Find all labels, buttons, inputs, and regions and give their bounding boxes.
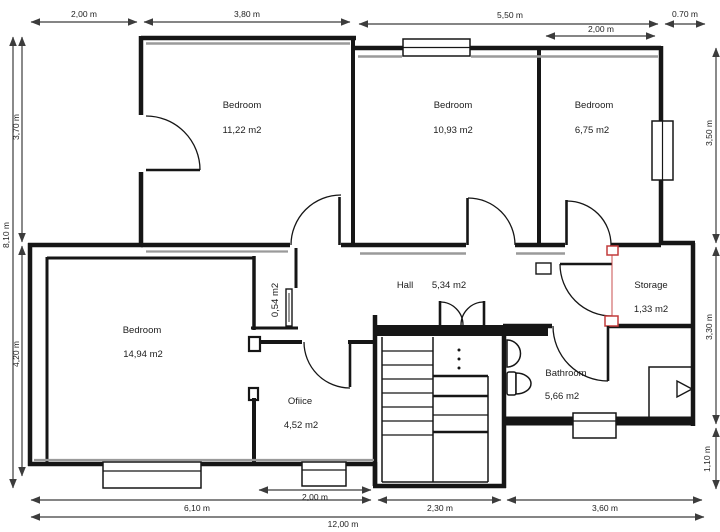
shower-door-triangle-icon xyxy=(677,381,692,397)
room-name-hall: Hall xyxy=(397,280,413,291)
toilet-tank-icon xyxy=(507,372,516,395)
stair-direction-dots xyxy=(458,349,461,370)
dim-label: 4,20 m xyxy=(11,341,21,367)
room-name-bathroom: Bathroom xyxy=(545,368,586,379)
door-arc xyxy=(461,302,484,325)
room-area-office: 4,52 m2 xyxy=(284,420,318,431)
entry-wall xyxy=(377,325,548,336)
door-arc xyxy=(146,116,200,170)
door-hinge-marker-red xyxy=(607,246,618,255)
dim-label: 3,30 m xyxy=(704,314,714,340)
dim-label: 2,00 m xyxy=(588,24,614,34)
dim-label: 1,10 m xyxy=(702,446,712,472)
window xyxy=(103,462,201,488)
room-name-storage: Storage xyxy=(634,280,667,291)
sink-icon xyxy=(507,340,521,367)
floor-plan-svg: 2,00 m 3,80 m 5,50 m 0.70 m 2,00 m 3,70 … xyxy=(0,0,720,532)
dim-label: 5,50 m xyxy=(497,10,523,20)
dim-label: 6,10 m xyxy=(184,503,210,513)
door-arc xyxy=(468,198,515,245)
room-name-bedroom-top-left: Bedroom xyxy=(223,100,262,111)
door-arc xyxy=(291,195,341,245)
dim-label: 3,70 m xyxy=(11,114,21,140)
bathroom-fixtures xyxy=(507,340,693,419)
stair-treads-right xyxy=(433,376,488,432)
room-name-bedroom-top-right: Bedroom xyxy=(575,100,614,111)
room-area-bedroom-left: 14,94 m2 xyxy=(123,349,163,360)
dim-label: 3,80 m xyxy=(234,9,260,19)
door-arc xyxy=(440,302,463,325)
door-arc xyxy=(304,342,350,388)
room-name-bedroom-left: Bedroom xyxy=(123,325,162,336)
door-hinge-marker-red xyxy=(605,316,618,326)
dim-label: 2,00 m xyxy=(71,9,97,19)
door-arc xyxy=(560,264,612,316)
room-name-bedroom-top-mid: Bedroom xyxy=(434,100,473,111)
room-area-hall: 5,34 m2 xyxy=(432,280,466,291)
dim-label: 3,60 m xyxy=(592,503,618,513)
stair-treads-left xyxy=(382,351,433,435)
column-box xyxy=(536,263,551,274)
staircase xyxy=(382,337,488,482)
room-name-office: Ofiice xyxy=(288,396,312,407)
dimension-lines xyxy=(13,22,716,517)
window xyxy=(302,462,346,486)
dim-label: 12,00 m xyxy=(328,519,359,529)
dim-label: 2,00 m xyxy=(302,492,328,502)
room-area-closet: 0,54 m2 xyxy=(270,283,281,317)
window xyxy=(573,413,616,438)
wall-post xyxy=(249,337,260,351)
room-area-bathroom: 5,66 m2 xyxy=(545,391,579,402)
room-labels: Bedroom 11,22 m2 Bedroom 10,93 m2 Bedroo… xyxy=(123,100,668,431)
toilet-bowl-icon xyxy=(516,373,531,394)
floor-plan-canvas: 2,00 m 3,80 m 5,50 m 0.70 m 2,00 m 3,70 … xyxy=(0,0,720,532)
room-area-bedroom-top-mid: 10,93 m2 xyxy=(433,125,473,136)
shower-enclosure xyxy=(649,367,693,419)
dim-label: 2,30 m xyxy=(427,503,453,513)
dimension-labels: 2,00 m 3,80 m 5,50 m 0.70 m 2,00 m 3,70 … xyxy=(1,9,714,529)
dim-label: 8,10 m xyxy=(1,222,11,248)
dim-label: 0.70 m xyxy=(672,9,698,19)
door-arc xyxy=(567,201,611,245)
dim-label: 3,50 m xyxy=(704,120,714,146)
room-area-bedroom-top-right: 6,75 m2 xyxy=(575,125,609,136)
room-area-storage: 1,33 m2 xyxy=(634,304,668,315)
room-area-bedroom-top-left: 11,22 m2 xyxy=(223,125,262,136)
